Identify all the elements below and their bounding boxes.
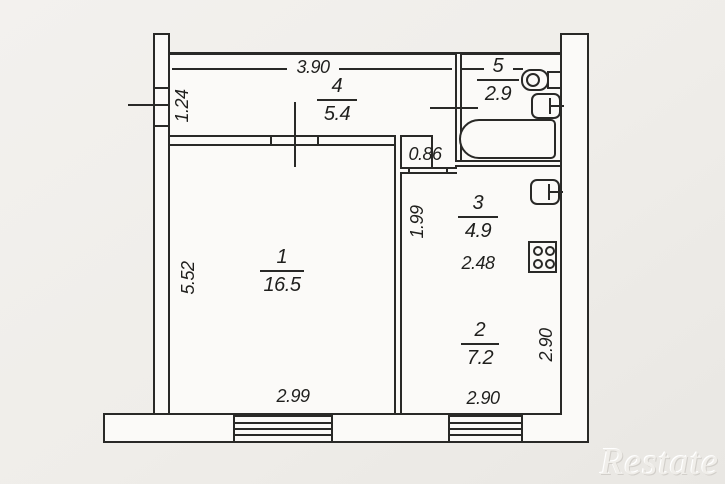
burner-icon [533, 259, 543, 269]
fraction-bar [317, 99, 357, 101]
wall-tick [153, 87, 170, 89]
bathtub-icon [459, 119, 556, 159]
dim-hall-width: 3.90 [296, 58, 329, 76]
toilet-bowl-circle [526, 73, 540, 87]
tap-icon [550, 105, 564, 107]
corridor-step-wall [402, 135, 433, 137]
dimension-line [172, 68, 287, 70]
burner-icon [545, 259, 555, 269]
room-3-label: 3 4.9 [458, 193, 498, 241]
window-pane-line [450, 434, 521, 436]
door-marker [294, 102, 296, 167]
dim-room2-width: 2.90 [466, 389, 499, 407]
door-marker [430, 107, 478, 109]
stove-icon [528, 241, 557, 273]
bathroom-left-wall [455, 54, 462, 167]
window-icon [448, 415, 523, 443]
room-number: 4 [331, 76, 342, 96]
burner-icon [545, 246, 555, 256]
door-jamb-tick [446, 167, 448, 174]
tap-icon [549, 191, 563, 193]
room1-right-wall [394, 135, 402, 413]
room-number: 1 [276, 247, 287, 267]
dim-room1-width: 2.99 [276, 387, 309, 405]
left-exterior-wall [153, 33, 170, 415]
dim-corridor-width: 0.86 [408, 145, 441, 163]
door-jamb-tick [270, 135, 272, 146]
fraction-bar [458, 216, 498, 218]
room-area: 4.9 [465, 221, 491, 241]
dim-room2-depth: 2.90 [537, 328, 555, 361]
room-4-label: 4 5.4 [317, 76, 357, 124]
wall-tick [153, 125, 170, 127]
bathroom-bottom-wall [455, 160, 560, 167]
watermark: Restate [600, 440, 719, 484]
room-number: 5 [492, 56, 503, 76]
door-jamb-tick [317, 135, 319, 146]
room-area: 5.4 [324, 104, 350, 124]
room-number: 3 [472, 193, 483, 213]
window-icon [233, 415, 333, 443]
room-area: 16.5 [264, 275, 301, 295]
dimension-line [339, 68, 452, 70]
room-number: 2 [474, 320, 485, 340]
window-pane-line [235, 422, 331, 424]
dim-kitchen-wall: 1.99 [408, 205, 426, 238]
door-jamb-tick [408, 167, 410, 174]
room1-top-wall [170, 135, 402, 146]
dimension-extension-line [128, 104, 170, 106]
right-exterior-wall [560, 33, 589, 443]
room-area: 2.9 [485, 84, 511, 104]
toilet-tank [547, 71, 562, 89]
dim-kitchen-width: 2.48 [461, 254, 494, 272]
plan-interior [170, 52, 560, 413]
fraction-bar [461, 343, 499, 345]
dim-left-wall-upper: 1.24 [173, 89, 191, 122]
window-pane-line [450, 422, 521, 424]
dim-room1-depth: 5.52 [179, 261, 197, 294]
window-pane-line [235, 434, 331, 436]
room-5-label: 5 2.9 [477, 56, 519, 104]
room-1-label: 1 16.5 [260, 247, 304, 295]
window-pane-line [450, 428, 521, 430]
window-pane-line [235, 428, 331, 430]
burner-icon [533, 246, 543, 256]
fraction-bar [477, 79, 519, 81]
fraction-bar [260, 270, 304, 272]
room-area: 7.2 [467, 348, 493, 368]
room-2-label: 2 7.2 [461, 320, 499, 368]
floor-plan-canvas: 3.90 1 16.5 2 7.2 3 4.9 [0, 0, 725, 484]
